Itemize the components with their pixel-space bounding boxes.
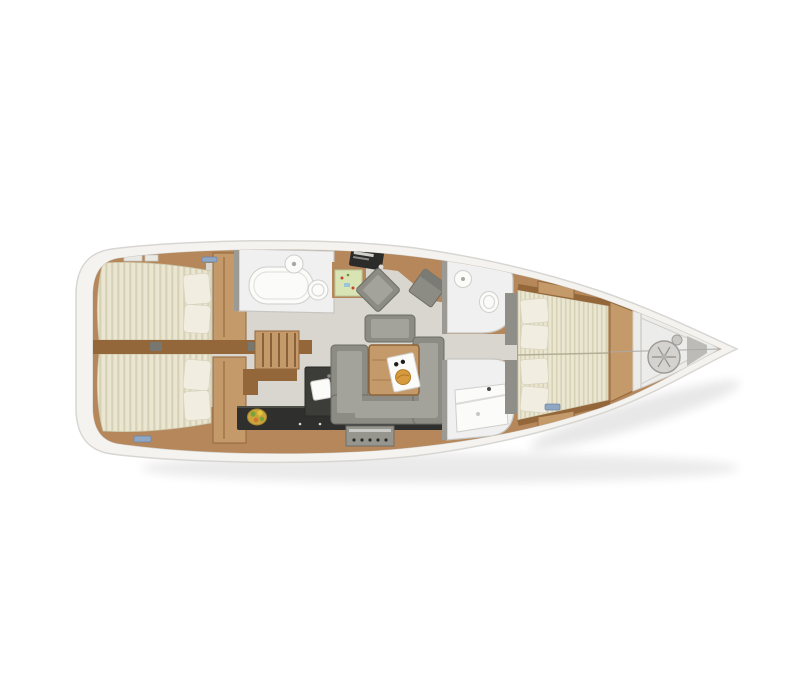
stern-shelf-item bbox=[145, 255, 158, 261]
aft-cabin-port bbox=[97, 253, 246, 341]
galley-sink bbox=[310, 378, 332, 400]
pillow bbox=[183, 390, 211, 421]
aft-head-wall bbox=[234, 249, 239, 311]
pillow bbox=[520, 324, 549, 350]
shower-drain bbox=[476, 412, 480, 416]
forward-head-starboard bbox=[442, 359, 514, 440]
washbasin-drain bbox=[292, 262, 296, 266]
pillow bbox=[520, 358, 549, 385]
pillow bbox=[520, 386, 549, 413]
faucet-icon bbox=[327, 374, 331, 378]
aft-head bbox=[234, 249, 334, 313]
counter-fitting bbox=[319, 423, 322, 426]
yacht-floor-plan bbox=[0, 0, 800, 700]
wardrobe-starboard bbox=[213, 357, 246, 443]
pillow bbox=[183, 359, 212, 391]
divider-cushion bbox=[150, 342, 162, 351]
chart-mark bbox=[347, 274, 350, 277]
pillow bbox=[183, 304, 211, 334]
deck-hatch bbox=[134, 436, 151, 442]
sofa-cushion bbox=[419, 343, 438, 417]
fruit-bowl bbox=[248, 409, 267, 425]
pillow bbox=[183, 273, 212, 305]
washbasin-drain bbox=[461, 277, 465, 281]
deck-hatch bbox=[545, 404, 560, 410]
bedside-locker bbox=[505, 293, 518, 345]
stairs bbox=[255, 331, 299, 369]
shower-tray bbox=[455, 384, 508, 432]
windlass-capstan bbox=[672, 335, 682, 345]
bedside-locker bbox=[505, 360, 518, 414]
chart-mark bbox=[352, 287, 355, 290]
toilet-icon bbox=[308, 280, 328, 300]
windlass-hub bbox=[661, 354, 667, 360]
pillow bbox=[520, 298, 549, 324]
ottoman-cushion bbox=[371, 319, 409, 338]
shower-faucet bbox=[487, 387, 491, 391]
oven bbox=[346, 426, 394, 446]
head-wall bbox=[442, 256, 447, 334]
chart-mark bbox=[341, 277, 344, 280]
counter-fitting bbox=[299, 423, 302, 426]
toilet-icon bbox=[480, 292, 499, 313]
deck-hatch bbox=[202, 257, 217, 262]
chart-mark bbox=[344, 283, 350, 287]
under-stairs-locker bbox=[243, 369, 258, 395]
head-wall bbox=[442, 360, 447, 440]
